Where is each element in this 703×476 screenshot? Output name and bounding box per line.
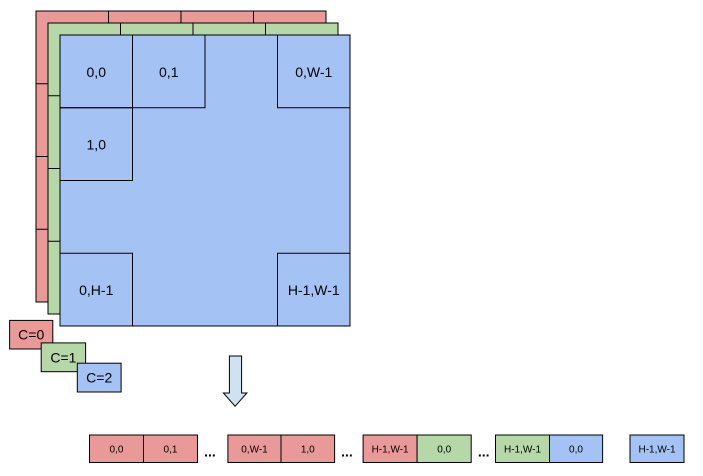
- svg-text:0,1: 0,1: [164, 444, 178, 455]
- svg-text:0,W-1: 0,W-1: [241, 444, 268, 455]
- svg-text:1,0: 1,0: [87, 137, 107, 153]
- svg-text:...: ...: [341, 444, 353, 460]
- svg-text:0,0: 0,0: [87, 64, 107, 80]
- svg-text:H-1,W-1: H-1,W-1: [288, 282, 340, 298]
- svg-text:0,W-1: 0,W-1: [295, 64, 332, 80]
- svg-text:...: ...: [478, 444, 490, 460]
- svg-text:H-1,W-1: H-1,W-1: [504, 444, 541, 455]
- svg-text:0,0: 0,0: [110, 444, 124, 455]
- svg-text:0,H-1: 0,H-1: [79, 282, 113, 298]
- svg-text:1,0: 1,0: [301, 444, 315, 455]
- svg-text:0,0: 0,0: [569, 444, 583, 455]
- svg-text:0,0: 0,0: [437, 444, 451, 455]
- svg-text:0,1: 0,1: [159, 64, 179, 80]
- svg-text:C=1: C=1: [50, 349, 76, 365]
- svg-text:C=0: C=0: [18, 327, 44, 343]
- svg-text:...: ...: [204, 444, 216, 460]
- svg-text:C=2: C=2: [86, 370, 112, 386]
- svg-text:H-1,W-1: H-1,W-1: [372, 444, 409, 455]
- svg-text:H-1,W-1: H-1,W-1: [638, 444, 675, 455]
